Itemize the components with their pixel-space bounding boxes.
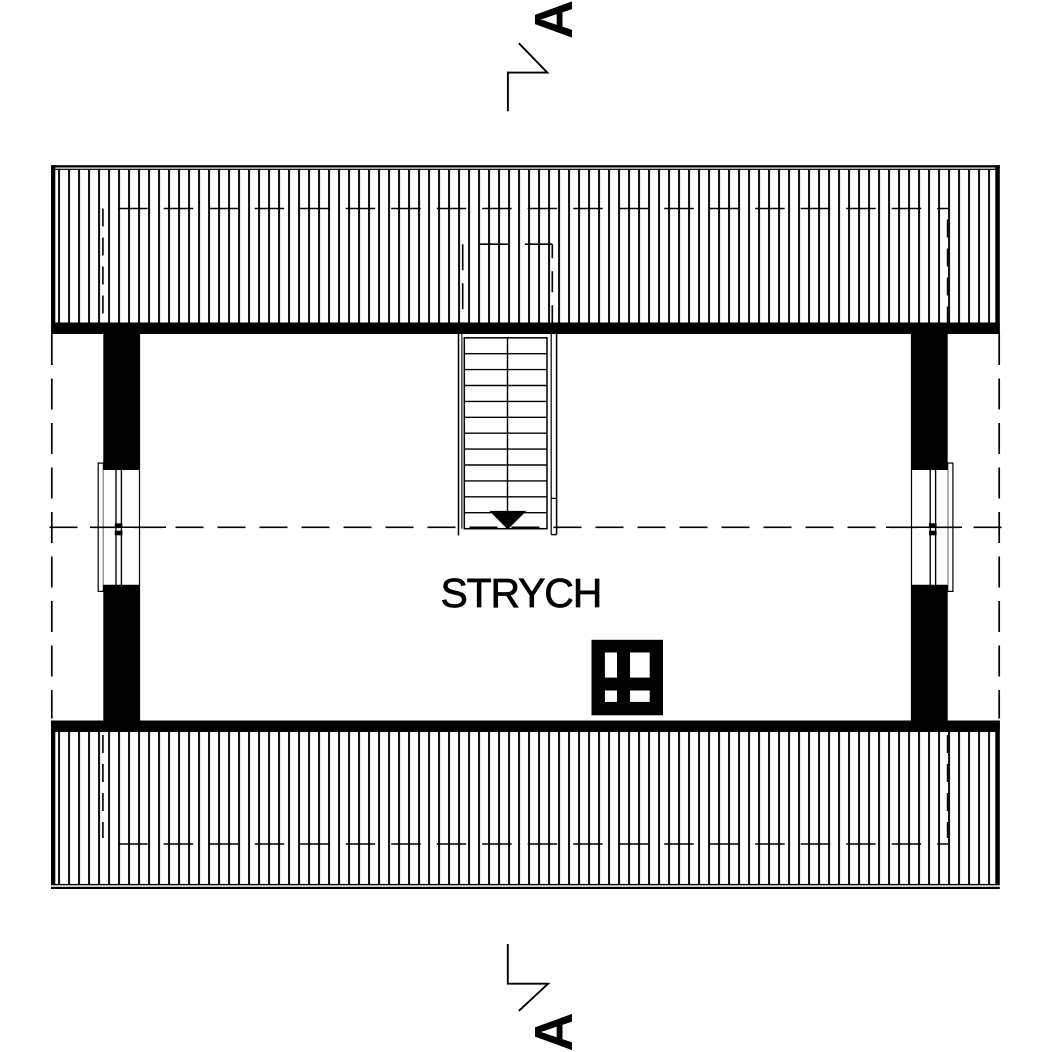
svg-text:A: A [524, 1013, 584, 1052]
svg-text:STRYCH: STRYCH [440, 570, 601, 616]
svg-text:A: A [524, 0, 584, 39]
